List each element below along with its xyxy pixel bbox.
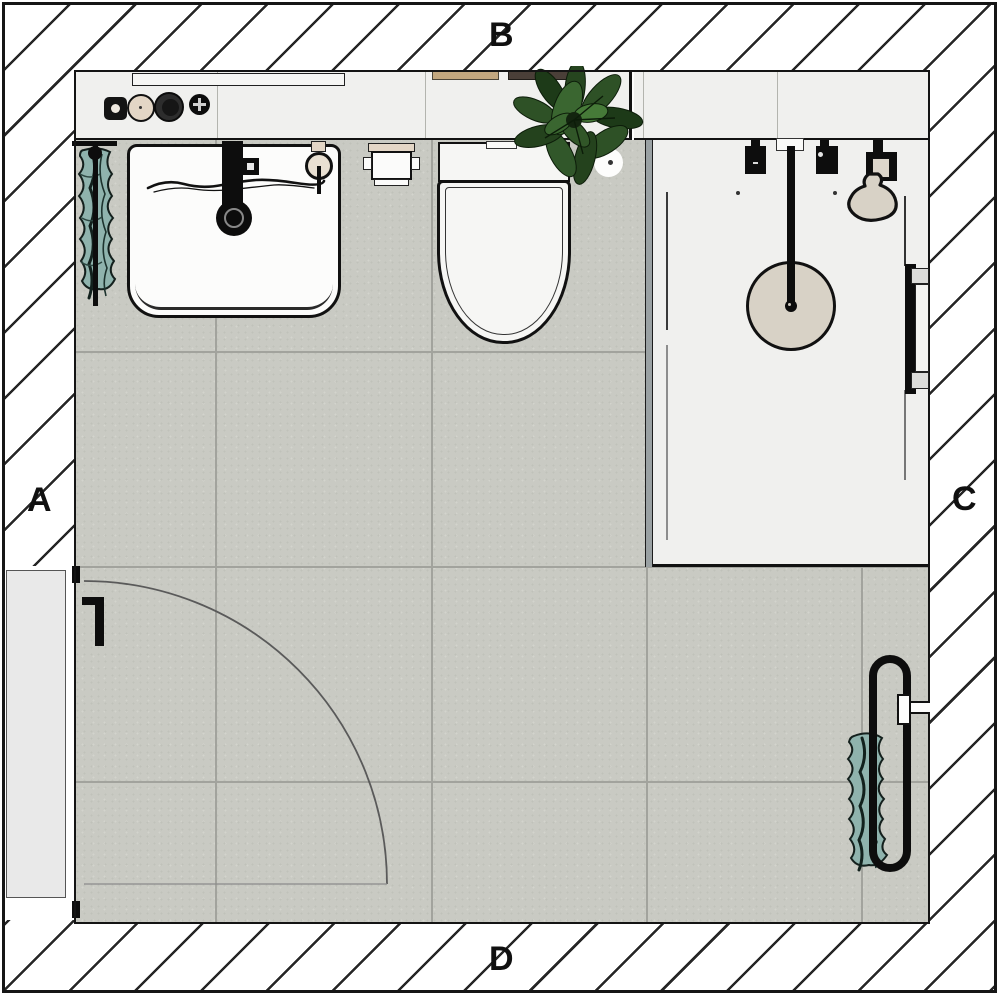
shower-door-rail: [904, 196, 906, 266]
towel-ring-mount: [311, 141, 326, 152]
tp-holder-sheet: [374, 179, 409, 186]
wall-label-right: C: [952, 482, 977, 516]
towel-ring-bar: [317, 166, 321, 194]
dispenser-cross: [198, 98, 201, 111]
door-jamb-top: [72, 566, 80, 583]
floor-plan: A B C D: [0, 0, 1000, 996]
tp-holder-roll: [371, 151, 412, 180]
shower-door-edge: [666, 345, 668, 540]
wall-label-bottom: D: [489, 942, 514, 976]
basin-drain-ring: [224, 208, 244, 228]
towel-rail-left-knob: [88, 146, 102, 160]
faucet-handle-notch: [247, 163, 254, 170]
shower-counter: [634, 70, 930, 140]
tp-holder-flange: [411, 157, 420, 170]
handle-bracket: [911, 372, 929, 389]
shower-glass-panel: [645, 140, 653, 567]
wall-towel-left: [70, 144, 128, 308]
shower-valve-icon: [745, 146, 766, 174]
valve-mark: [753, 162, 758, 164]
towel-radiator-icon: [869, 655, 911, 872]
soap-dish-dot: [111, 104, 120, 113]
rain-head-glint: [788, 303, 791, 306]
tumbler-dot: [139, 106, 142, 109]
handle-bracket: [911, 268, 929, 284]
wall-label-left: A: [27, 483, 52, 517]
tp-holder-flange: [363, 157, 372, 170]
towel-rail-left-bar: [93, 146, 98, 306]
potted-plant-icon: [505, 66, 645, 192]
radiator-wall-arm: [911, 701, 930, 714]
bowl-inner: [162, 99, 179, 116]
door-swing-arc: [70, 560, 400, 894]
shower-door-rail: [904, 390, 906, 480]
wall-label-top: B: [489, 18, 514, 52]
shower-door-edge: [666, 192, 668, 330]
door-leaf: [6, 570, 66, 898]
door-jamb-bottom: [72, 901, 80, 918]
tile-joint-vertical: [431, 140, 433, 924]
rain-head-center: [785, 300, 797, 312]
shower-arm-icon: [787, 146, 795, 308]
counter-seam: [777, 71, 778, 138]
counter-shelf-edge: [132, 73, 345, 86]
wall-niche: [915, 284, 929, 372]
tray-dot: [736, 191, 740, 195]
door-handle-icon: [95, 605, 104, 646]
hand-shower-head-icon: [832, 168, 902, 224]
radiator-bracket: [897, 694, 911, 725]
folded-towel-tan: [432, 71, 499, 80]
valve-dot: [818, 152, 823, 157]
counter-seam: [425, 71, 426, 138]
door-handle-icon: [82, 597, 104, 605]
